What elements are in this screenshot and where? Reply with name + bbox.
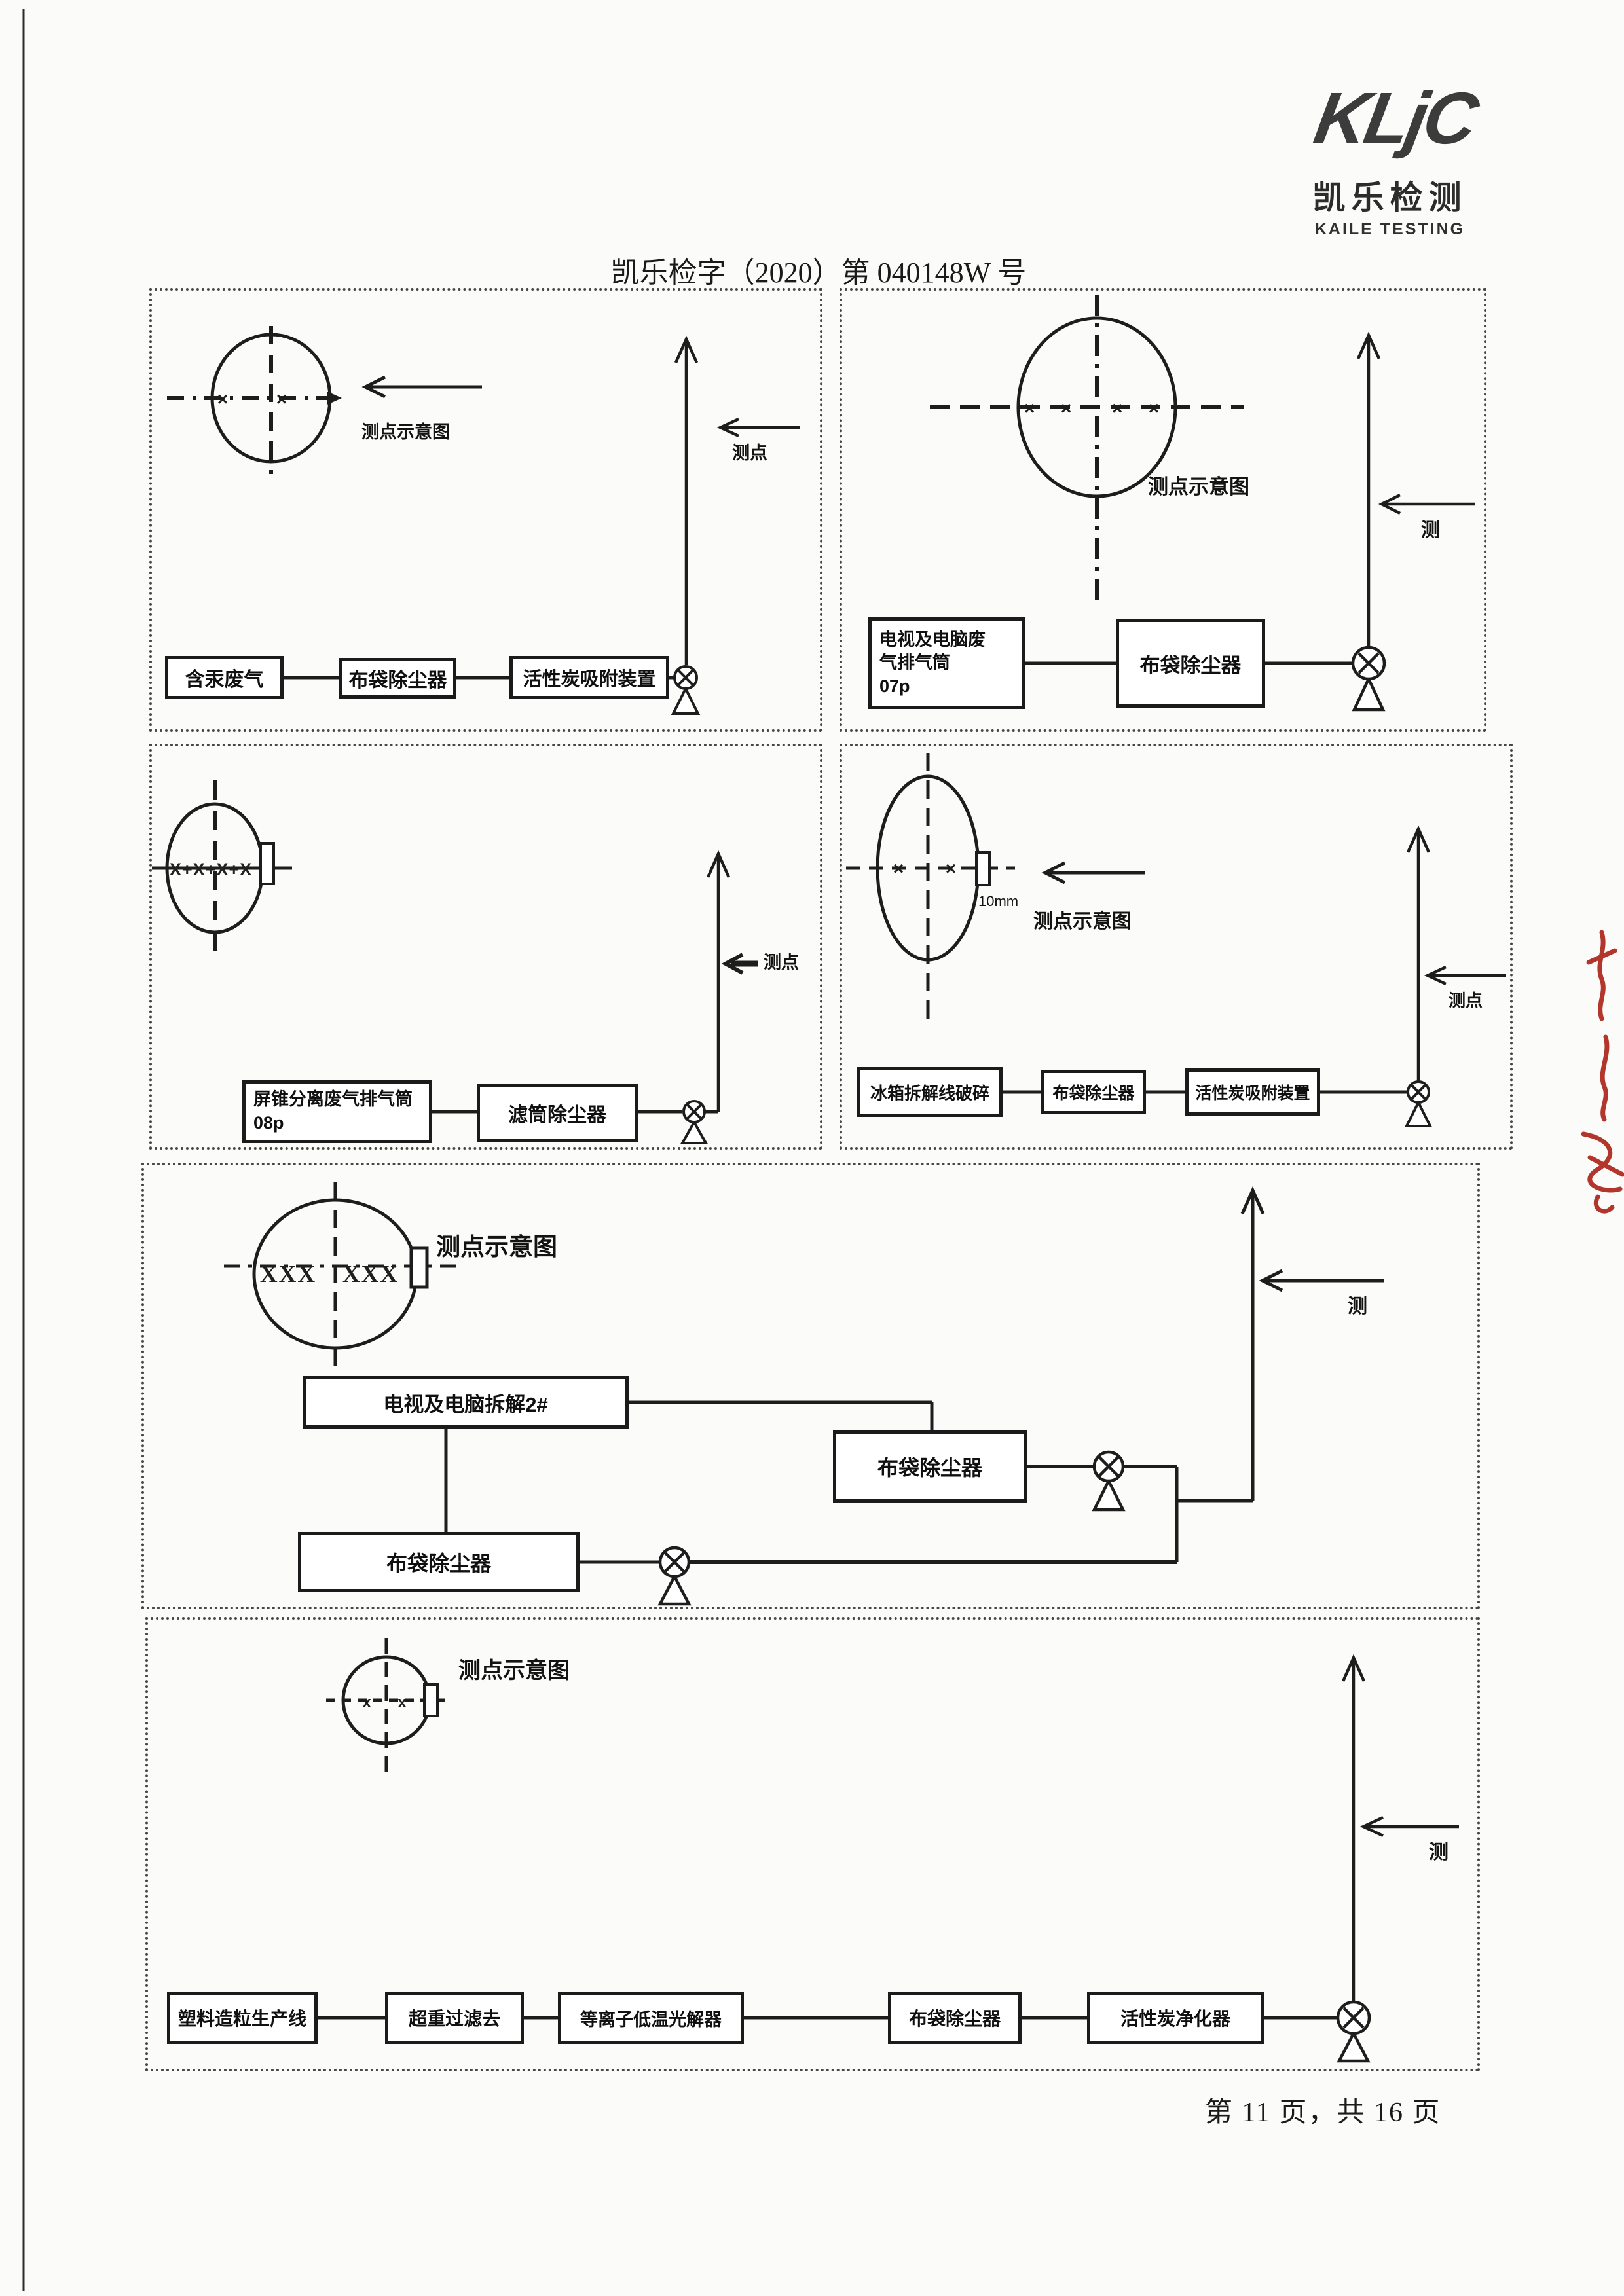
p6-duct-cross-section: x x [326,1638,449,1776]
p6-process-box-bag-filter: 布袋除尘器 [888,1992,1022,2044]
p1-stack-arrow [676,339,697,665]
p2-duct-mark: × [1024,398,1035,418]
p6-stack-arrow [1343,1658,1364,2002]
p4-duct-cross-section: × × [846,753,1015,1020]
p4-tab-size-label: 10mm [978,893,1018,910]
p2-process-box-source-stack: 电视及电脑废 气排气筒 07p [868,617,1025,709]
p6-duct-mark: x [397,1694,407,1711]
p1-schematic-arrow [365,377,482,397]
p4-measure-point-label: 测点 [1449,987,1483,1011]
p1-fan-icon [673,666,698,714]
p6-process-box-heavy-filter: 超重过滤去 [385,1992,524,2044]
p4-duct-mark: × [946,858,956,879]
p3-duct-cross-section: X+X+X+X [152,780,292,955]
diagram-linework-layer: × × [0,0,1624,2296]
p2-stack-arrow [1358,335,1379,647]
p3-process-box-cartridge-filter: 滤筒除尘器 [477,1084,638,1142]
p1-duct-mark: × [276,389,287,409]
p6-schematic-label: 测点示意图 [458,1652,570,1685]
p2-duct-mark: × [1149,398,1159,418]
p5-schematic-label: 测点示意图 [436,1227,557,1262]
p1-measure-arrow [720,419,800,436]
p4-schematic-label: 测点示意图 [1033,905,1132,934]
p3-measure-arrow [726,955,758,973]
p2-schematic-label: 测点示意图 [1148,470,1249,500]
p5-duct-marks: XXX [342,1261,399,1288]
p5-measure-arrow [1263,1271,1384,1290]
scanned-report-page: KLjC 凯乐检测 KAILE TESTING 凯乐检字（2020）第 0401… [0,0,1624,2296]
p5-process-box-bag-filter-bottom: 布袋除尘器 [298,1532,580,1592]
p6-process-box-plasma-photolysis: 等离子低温光解器 [558,1992,744,2044]
p5-duct-cross-section: XXX XXX [224,1182,458,1371]
p2-duct-mark: × [1061,398,1071,418]
p2-duct-cross-section: × × × × [930,295,1244,602]
p3-fan-icon [682,1101,706,1143]
p4-stack-arrow [1408,829,1429,1082]
p3-measure-point-label: 测点 [764,948,799,974]
p2-measure-arrow [1382,495,1475,513]
p1-schematic-label: 测点示意图 [361,418,450,443]
p6-process-box-carbon-purifier: 活性炭净化器 [1087,1992,1264,2044]
p6-measure-point-label: 测 [1429,1836,1449,1865]
p4-duct-mark: × [893,858,904,879]
p4-schematic-arrow [1045,863,1145,883]
p1-measure-point-label: 测点 [732,439,767,464]
p6-process-box-pelletizing-line: 塑料造粒生产线 [167,1992,318,2044]
p5-fan-icon-top [1094,1452,1123,1510]
p2-measure-point-label: 测 [1421,515,1440,542]
p3-stack-arrow [708,854,729,1112]
p4-process-box-carbon-adsorber: 活性炭吸附装置 [1185,1068,1320,1116]
p6-duct-mark: x [362,1694,371,1711]
p5-process-box-source: 电视及电脑拆解2# [303,1376,629,1429]
p1-duct-mark: × [217,389,228,409]
p3-process-box-source-stack: 屏锥分离废气排气筒 08p [242,1080,432,1143]
p4-measure-arrow [1428,967,1506,984]
p2-fan-icon [1353,647,1384,710]
p1-duct-cross-section: × × [167,326,342,474]
p1-process-box-source: 含汞废气 [165,656,284,699]
p4-process-box-bag-filter: 布袋除尘器 [1041,1070,1146,1114]
p6-fan-icon [1338,2002,1369,2061]
p1-process-box-carbon-adsorber: 活性炭吸附装置 [509,656,669,699]
p4-fan-icon [1407,1082,1430,1126]
p6-measure-arrow [1363,1817,1459,1836]
p5-fan-icon-bottom [660,1548,689,1604]
p2-process-box-bag-filter: 布袋除尘器 [1116,619,1265,708]
p4-process-box-source: 冰箱拆解线破碎 [857,1067,1003,1117]
p1-process-box-bag-filter: 布袋除尘器 [339,658,456,699]
p5-duct-marks: XXX [260,1261,316,1288]
p3-duct-marks: X+X+X+X [170,860,252,879]
red-annotation-marks [1583,932,1623,1211]
p2-duct-mark: × [1112,398,1122,418]
p5-stack-arrow [1242,1190,1263,1501]
p5-measure-point-label: 测 [1348,1290,1367,1319]
p5-process-box-bag-filter-top: 布袋除尘器 [833,1430,1027,1503]
